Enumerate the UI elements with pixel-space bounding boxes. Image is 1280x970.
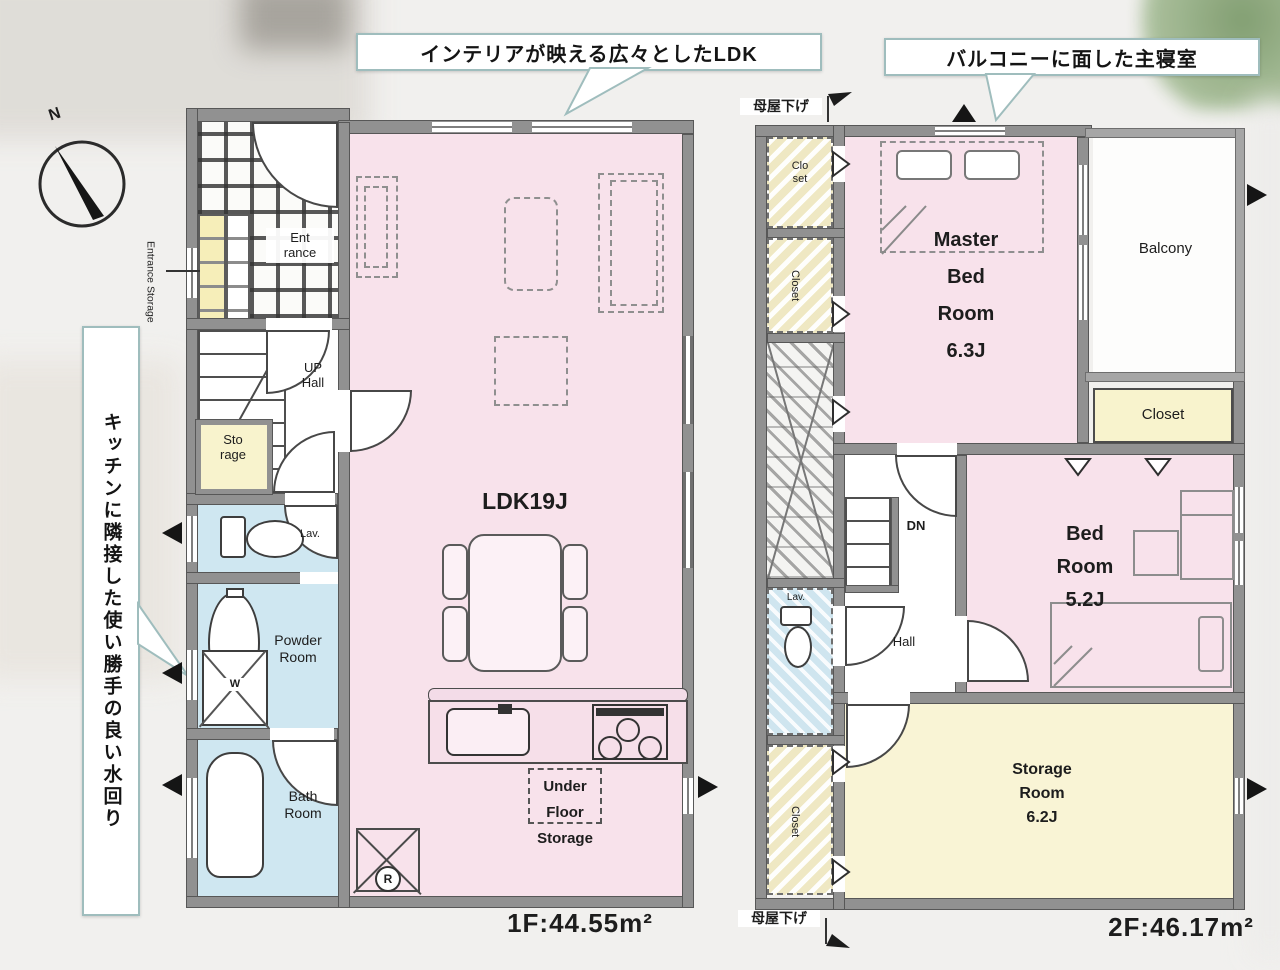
entrance-label: Ent rance [266, 228, 334, 263]
kitchen-sink-icon [446, 708, 530, 756]
pillow-icon [1198, 616, 1224, 672]
balcony-wall [1235, 128, 1245, 380]
dn-label: DN [896, 518, 936, 533]
moyasage-bottom-label: 母屋下げ [738, 910, 820, 927]
dresser-icon [1180, 490, 1234, 580]
vent-arrow-icon [1247, 184, 1267, 206]
up-hall-label: UP Hall [288, 360, 338, 391]
bg-hood [240, 0, 350, 50]
balcony-wall [1085, 128, 1245, 138]
window [187, 248, 197, 298]
master-callout: バルコニーに面した主寝室 [884, 38, 1260, 76]
window [683, 778, 693, 814]
wall [338, 122, 350, 908]
sofa-cushion-icon [610, 180, 658, 306]
window [432, 122, 512, 132]
closet-arrow-icon [831, 748, 851, 776]
water-callout: キッチンに隣接した使い勝手の良い水回り [82, 326, 140, 916]
door-gap [270, 728, 334, 740]
wall [833, 125, 845, 910]
powder-room-label: Powder Room [258, 632, 338, 665]
moyasage-top-label: 母屋下げ [740, 98, 822, 115]
door-gap [897, 443, 957, 455]
bedroom-label: Bed Room 5.2J [1030, 518, 1140, 617]
stairs-2f-icon [845, 497, 891, 587]
door-gap [266, 318, 332, 330]
rug-icon [494, 336, 568, 406]
wall [767, 333, 845, 343]
compass-icon: N [30, 106, 142, 232]
door-gap [285, 493, 335, 505]
closet-right-label: Closet [1126, 406, 1200, 424]
floorplan-page: N インテリアが映える広々としたLDK バルコニーに面した主寝室 キッチンに隣接… [0, 0, 1280, 970]
under-floor-storage-label: Under Floor Storage [497, 774, 633, 852]
wall [186, 108, 350, 122]
door-gap [848, 692, 910, 704]
window [1079, 245, 1087, 320]
stove-panel [596, 708, 664, 716]
entrance-shoe-shelf-icon [226, 214, 250, 320]
ldk-label: LDK19J [450, 488, 600, 515]
storage-room-label: Storage Room 6.2J [988, 758, 1096, 830]
balcony-wall [1085, 372, 1245, 382]
sliding-window [683, 336, 693, 424]
coffee-table-icon [504, 197, 558, 291]
hall-2f-label: Hall [882, 634, 926, 649]
vent-arrow-icon [162, 774, 182, 796]
pillow-icon [964, 150, 1020, 180]
toilet-tank-icon [220, 516, 246, 558]
wall [767, 578, 845, 588]
dresser-line [1182, 514, 1232, 516]
stove-icon [592, 704, 668, 760]
master-bedroom-label: Master Bed Room 6.3J [896, 222, 1036, 370]
balcony-label: Balcony [1118, 240, 1213, 258]
wall [186, 896, 694, 908]
door-gap [833, 606, 845, 666]
entrance-storage-pointer [166, 270, 200, 272]
door-gap [338, 390, 350, 452]
wall [845, 585, 899, 593]
moyasage-flag-icon [820, 916, 856, 950]
area-2f-label: 2F:46.17m² [1096, 912, 1266, 943]
closet-top-label: Clo set [772, 160, 828, 186]
wall [338, 120, 694, 134]
bathtub-icon [206, 752, 264, 878]
closet-arrow-icon [831, 858, 851, 886]
moyasage-flag-icon [822, 90, 858, 124]
ldk-callout-text: インテリアが映える広々としたLDK [420, 38, 758, 67]
dining-table-icon [468, 534, 562, 672]
closet-arrow-icon [831, 150, 851, 178]
faucet-icon [226, 588, 244, 598]
closet-arrow-icon [831, 398, 851, 426]
burner-icon [598, 736, 622, 760]
vent-arrow-icon [952, 104, 976, 122]
window [1235, 487, 1243, 533]
wall [767, 735, 845, 745]
dining-chair-icon [442, 544, 468, 600]
ldk-callout-tail [556, 66, 656, 118]
wall [891, 497, 899, 587]
entrance-storage-label: Entrance Storage [144, 202, 156, 362]
vent-arrow-icon [162, 662, 182, 684]
lav-2f-label: Lav. [768, 592, 824, 604]
door-gap [300, 572, 338, 584]
pillow-icon [896, 150, 952, 180]
bed-fold-icon [1052, 640, 1100, 688]
window-arrow-icon [1144, 457, 1172, 477]
burner-icon [638, 736, 662, 760]
window [187, 516, 197, 562]
window [1235, 778, 1243, 814]
door-gap [955, 616, 967, 682]
window [187, 778, 197, 858]
sliding-window [683, 472, 693, 568]
refrigerator-badge: R [375, 866, 401, 892]
master-callout-tail [978, 72, 1048, 124]
dining-chair-icon [562, 606, 588, 662]
window [532, 122, 632, 132]
bg-right-col [1250, 100, 1280, 960]
closet-upper-label: Closet [788, 248, 801, 324]
closet-arrow-icon [831, 300, 851, 328]
window [1235, 541, 1243, 585]
lav-1f-label: Lav. [288, 528, 332, 541]
vent-arrow-icon [162, 522, 182, 544]
entrance-storage-shelf-icon [198, 214, 226, 320]
vent-arrow-icon [698, 776, 718, 798]
storage-1f-label: Sto rage [202, 432, 264, 463]
area-1f-label: 1F:44.55m² [470, 908, 690, 939]
burner-icon [616, 718, 640, 742]
toilet-bowl-icon [784, 626, 812, 668]
closet-lower-label: Closet [788, 782, 801, 862]
tv-icon [364, 186, 388, 268]
kitchen-faucet-icon [498, 704, 512, 714]
wall [767, 228, 845, 238]
wall [833, 443, 1245, 455]
window [187, 650, 197, 700]
washer-label: W [224, 678, 246, 691]
wall [755, 125, 767, 910]
wall [755, 125, 1092, 137]
bath-room-label: Bath Room [268, 788, 338, 821]
window [1079, 165, 1087, 235]
master-callout-text: バルコニーに面した主寝室 [946, 43, 1198, 72]
dining-chair-icon [442, 606, 468, 662]
refrigerator-label: R [384, 872, 393, 886]
dining-chair-icon [562, 544, 588, 600]
window [935, 127, 1005, 135]
water-callout-text: キッチンに隣接した使い勝手の良い水回り [98, 412, 125, 830]
vent-arrow-icon [1247, 778, 1267, 800]
toilet-tank-icon [780, 606, 812, 626]
wall [755, 898, 1245, 910]
window-arrow-icon [1064, 457, 1092, 477]
